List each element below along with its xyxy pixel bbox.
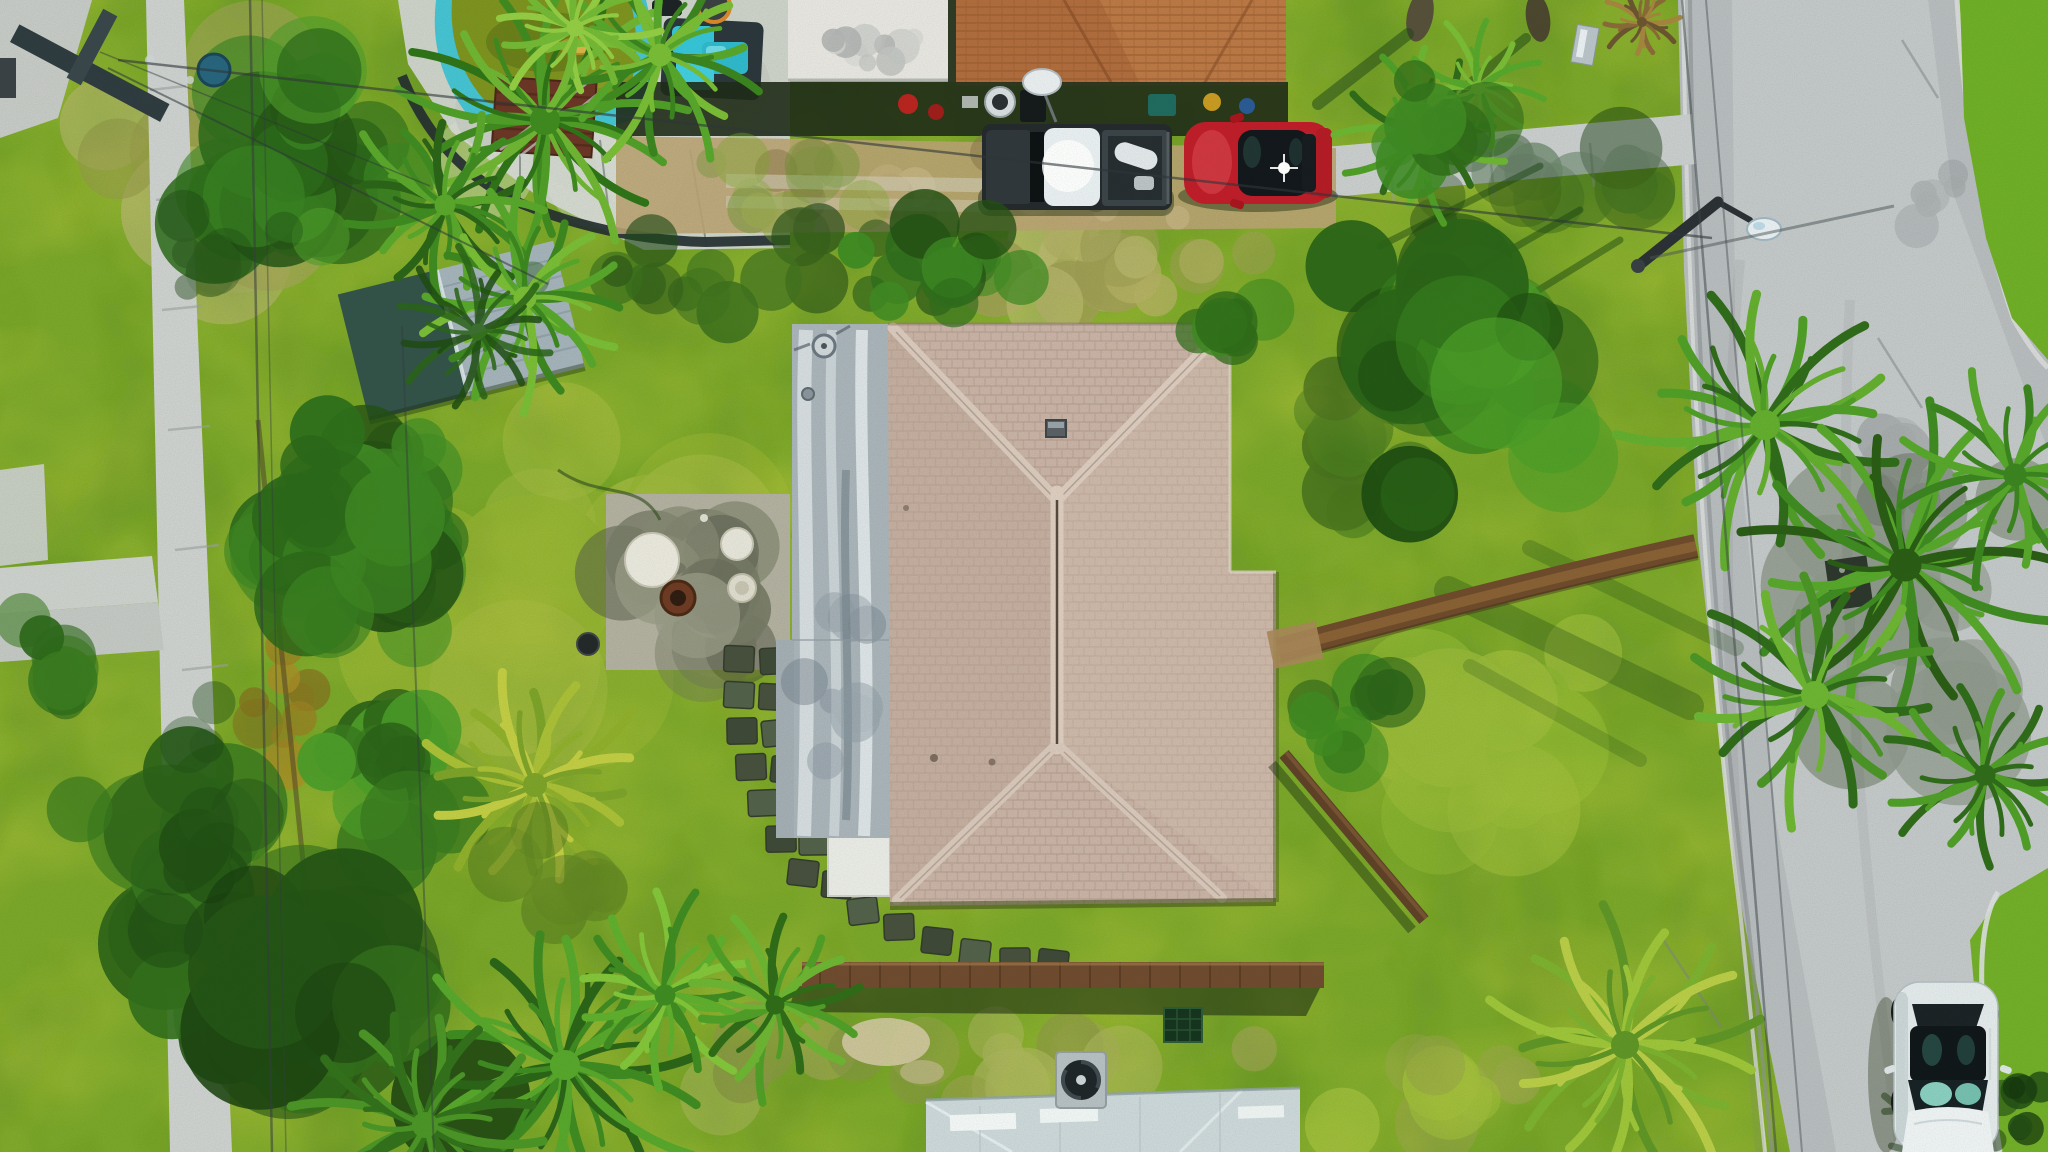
photo-grain	[0, 0, 2048, 1152]
aerial-photo-viewport	[0, 0, 2048, 1152]
aerial-photo	[0, 0, 2048, 1152]
